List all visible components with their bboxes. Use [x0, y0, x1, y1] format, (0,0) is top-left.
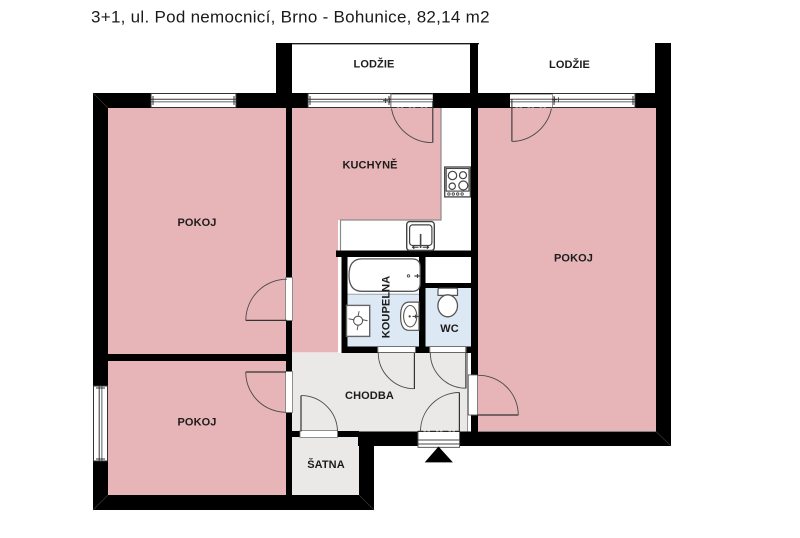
svg-text:CHODBA: CHODBA: [345, 390, 394, 402]
svg-text:3+1, ul. Pod nemocnicí, Brno -: 3+1, ul. Pod nemocnicí, Brno - Bohunice,…: [91, 8, 490, 27]
svg-text:POKOJ: POKOJ: [554, 253, 593, 265]
svg-text:POKOJ: POKOJ: [177, 417, 216, 429]
svg-text:LODŽIE: LODŽIE: [549, 58, 590, 71]
svg-text:LODŽIE: LODŽIE: [354, 58, 395, 71]
svg-text:POKOJ: POKOJ: [177, 217, 216, 229]
svg-text:KOUPELNA: KOUPELNA: [381, 276, 393, 339]
svg-text:WC: WC: [440, 323, 459, 335]
svg-text:KUCHYNĚ: KUCHYNĚ: [342, 159, 397, 172]
svg-text:ŠATNA: ŠATNA: [307, 458, 345, 471]
